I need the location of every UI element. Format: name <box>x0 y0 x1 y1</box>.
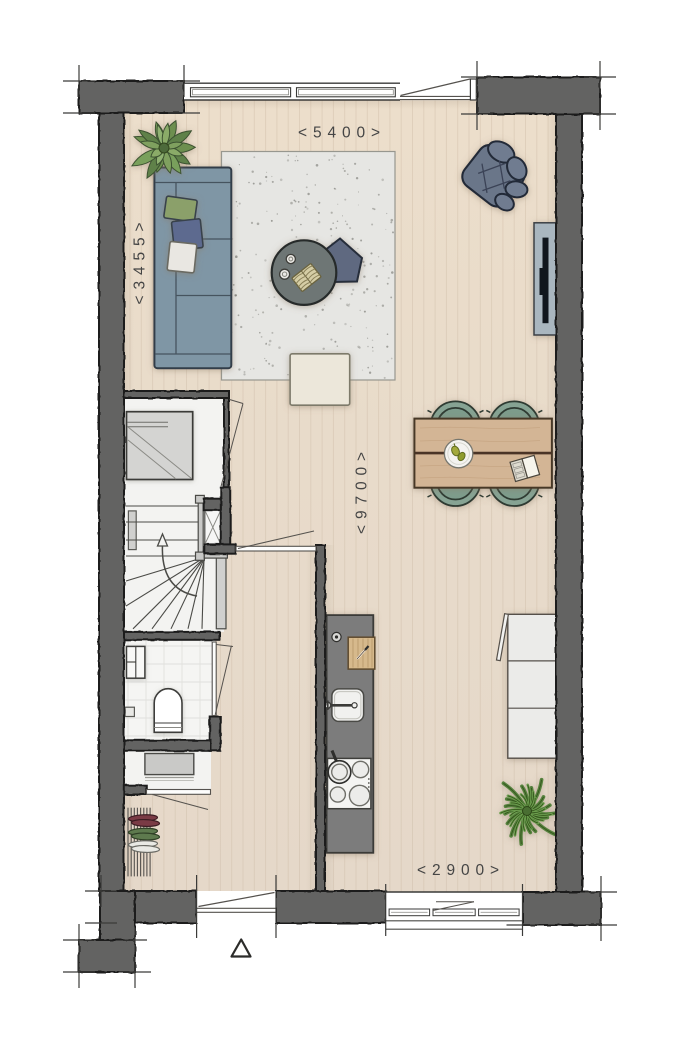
svg-text:<5400>: <5400> <box>298 125 386 142</box>
svg-text:<2900>: <2900> <box>417 862 505 879</box>
svg-text:<3455>: <3455> <box>132 217 149 305</box>
svg-text:<9700>: <9700> <box>354 446 371 534</box>
